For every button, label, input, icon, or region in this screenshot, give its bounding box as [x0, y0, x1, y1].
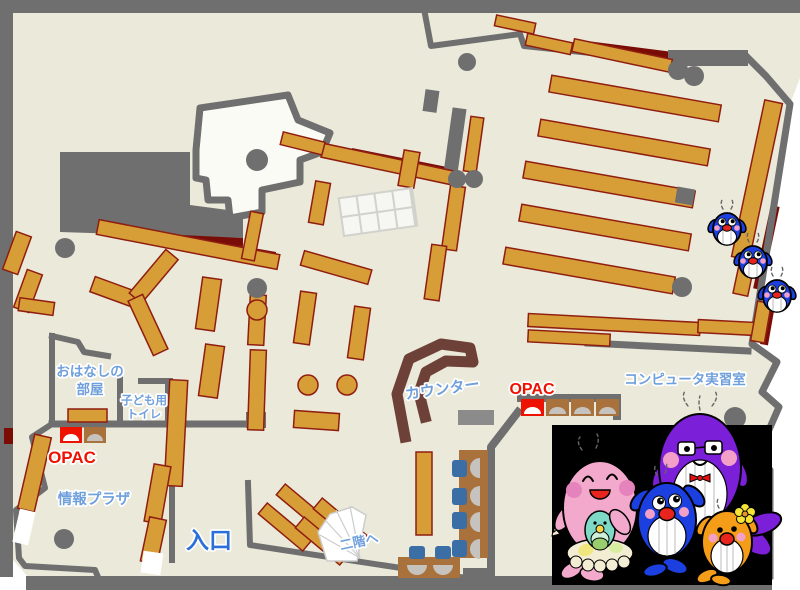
- label-kids-toilet-line1: 子ども用: [121, 394, 167, 407]
- label-opac-main: OPAC: [509, 381, 554, 398]
- label-story-room-line1: おはなしの: [56, 364, 124, 379]
- opac-terminal: [571, 399, 594, 416]
- bookshelf: [68, 409, 107, 422]
- opac-terminal: [546, 399, 569, 416]
- opac-terminal-red: [521, 399, 544, 416]
- bookshelf: [248, 350, 267, 431]
- round-table: [337, 375, 357, 395]
- counter-desk: [458, 410, 494, 425]
- bookshelf: [416, 452, 432, 535]
- frame-top: [0, 0, 800, 13]
- label-computer-room: コンピュータ実習室: [624, 371, 746, 387]
- opac-terminal-red: [60, 427, 82, 443]
- opac-terminal: [596, 399, 619, 416]
- round-table: [247, 300, 267, 320]
- pillar: [55, 238, 75, 258]
- opac-terminal: [84, 427, 106, 443]
- label-kids-toilet-line2: トイレ: [127, 408, 162, 421]
- bookshelf: [698, 320, 755, 336]
- pillar: [465, 170, 483, 188]
- label-opac-children: OPAC: [48, 448, 96, 467]
- bookshelf: [293, 410, 339, 430]
- shelf-endcap: [675, 187, 696, 206]
- pillar: [247, 278, 267, 298]
- pillar: [54, 529, 74, 549]
- pillar: [684, 66, 704, 86]
- pillar: [246, 149, 268, 171]
- dark-red-sliver: [4, 428, 13, 444]
- door-gap: [141, 551, 164, 576]
- round-table: [298, 375, 318, 395]
- pillar: [672, 277, 692, 297]
- frame-left: [0, 0, 13, 577]
- label-info-plaza: 情報プラザ: [58, 490, 131, 508]
- pillar: [458, 53, 476, 71]
- label-entrance: 入口: [186, 527, 232, 553]
- library-floor-map: おはなしの 部屋 子ども用 トイレ OPAC 情報プラザ 入口 二階へ カウンタ…: [0, 0, 800, 590]
- label-story-room-line2: 部屋: [77, 381, 104, 397]
- pillar: [448, 170, 466, 188]
- wall-block: [463, 568, 495, 586]
